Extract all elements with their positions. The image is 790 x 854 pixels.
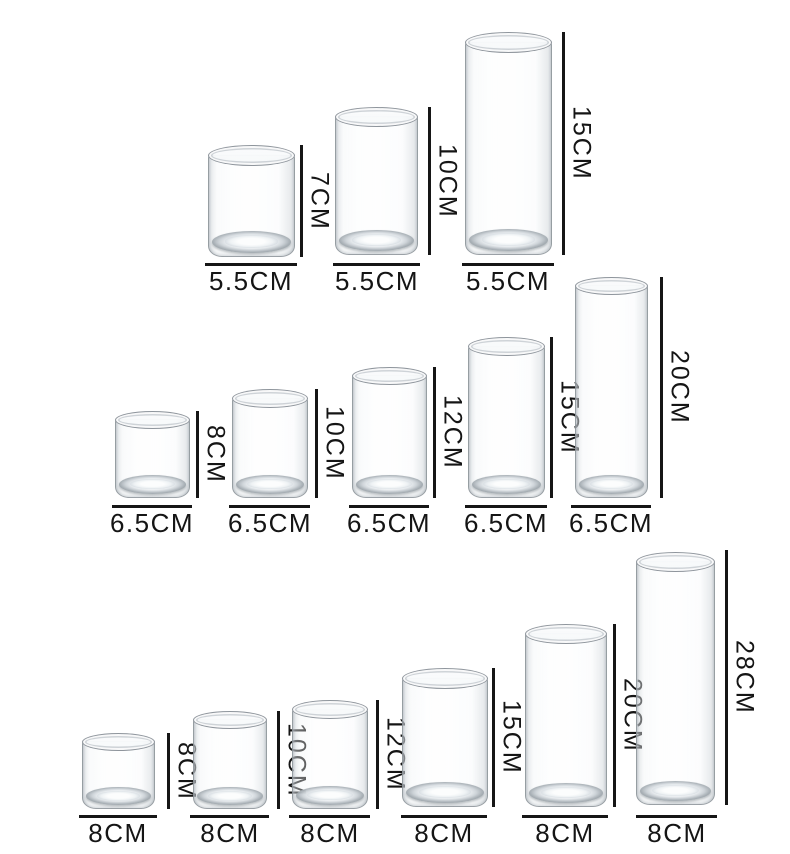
height-label: 15CM <box>495 668 527 807</box>
glass-rim <box>465 32 552 53</box>
glass-vase <box>402 668 488 807</box>
glass-base-inner <box>307 790 353 800</box>
diameter-label: 8CM <box>269 818 391 849</box>
glass-vase <box>82 733 155 809</box>
glass-vase <box>335 107 418 255</box>
glass-rim <box>193 711 267 729</box>
glass-vase <box>465 32 552 255</box>
glass-vase <box>208 145 295 257</box>
glass-rim <box>115 411 190 429</box>
height-label: 8CM <box>199 411 231 498</box>
glass-rim <box>352 367 427 385</box>
height-label: 7CM <box>303 145 335 257</box>
glass-rim <box>402 668 488 689</box>
glass-base-inner <box>225 235 277 247</box>
height-label: 10CM <box>318 389 350 498</box>
diameter-label: 5.5CM <box>190 266 312 297</box>
glass-vase <box>352 367 427 498</box>
diameter-label: 8CM <box>57 818 179 849</box>
diameter-label: 6.5CM <box>445 508 567 539</box>
diameter-label: 6.5CM <box>91 508 213 539</box>
glass-vase <box>115 411 190 498</box>
glass-rim <box>292 700 368 719</box>
vase-size-chart: 7CM 5.5CM 10CM 5.5CM 15CM 5.5CM <box>0 0 790 854</box>
glass-base-inner <box>541 787 590 798</box>
diameter-label: 8CM <box>616 818 738 849</box>
glass-rim <box>232 389 308 408</box>
diameter-label: 5.5CM <box>316 266 438 297</box>
glass-vase <box>636 552 715 805</box>
glass-rim <box>82 733 155 751</box>
glass-wall <box>575 285 648 498</box>
glass-base-inner <box>247 479 293 489</box>
diameter-label: 6.5CM <box>328 508 450 539</box>
diameter-label: 8CM <box>383 818 505 849</box>
glass-base-inner <box>352 234 402 246</box>
glass-rim <box>468 337 545 356</box>
glass-base-inner <box>483 479 529 489</box>
glass-rim <box>636 552 715 572</box>
glass-wall <box>525 633 607 807</box>
glass-wall <box>636 561 715 805</box>
glass-vase <box>575 277 648 498</box>
diameter-label: 8CM <box>504 818 626 849</box>
height-label: 28CM <box>728 550 760 805</box>
glass-rim <box>208 145 295 166</box>
glass-vase <box>232 389 308 498</box>
diameter-label: 5.5CM <box>447 266 569 297</box>
diameter-label: 6.5CM <box>209 508 331 539</box>
glass-rim <box>335 107 418 127</box>
height-label: 15CM <box>565 32 597 255</box>
glass-base-inner <box>652 785 699 796</box>
glass-vase <box>468 337 545 498</box>
diameter-label: 6.5CM <box>550 508 672 539</box>
height-label: 20CM <box>663 277 695 498</box>
glass-rim <box>575 277 648 295</box>
height-label: 10CM <box>431 107 463 255</box>
glass-base-inner <box>419 786 471 798</box>
glass-vase <box>525 624 607 807</box>
glass-base-inner <box>97 791 141 801</box>
glass-base-inner <box>482 233 534 245</box>
height-label: 12CM <box>436 367 468 498</box>
glass-vase <box>193 711 267 809</box>
glass-vase <box>292 700 368 809</box>
glass-base-inner <box>208 791 252 801</box>
glass-rim <box>525 624 607 644</box>
glass-wall <box>465 42 552 256</box>
